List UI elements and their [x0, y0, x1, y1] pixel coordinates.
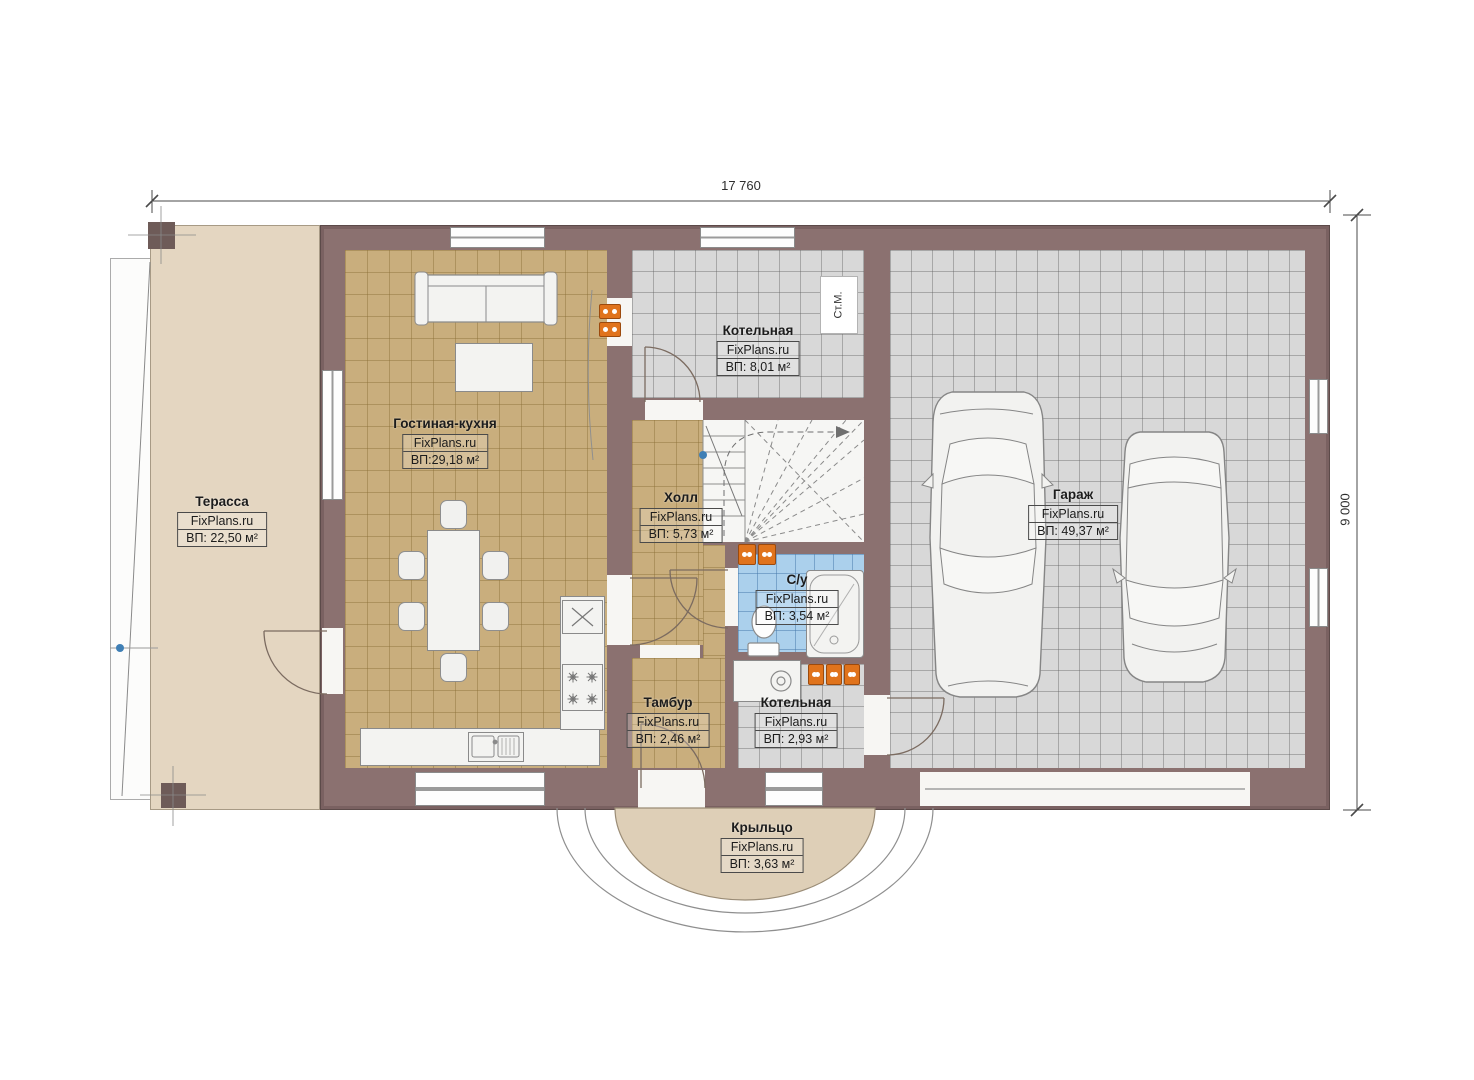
chair [482, 551, 509, 580]
dimension-top [146, 190, 1336, 213]
room-brand: FixPlans.ru [756, 714, 837, 731]
radiator [599, 304, 621, 319]
room-area: ВП: 3,54 м² [757, 608, 838, 624]
room-brand: FixPlans.ru [178, 513, 266, 530]
room-name: Крыльцо [721, 820, 804, 835]
room-brand: FixPlans.ru [722, 839, 803, 856]
chair [440, 653, 467, 682]
room-name: Холл [640, 490, 723, 505]
dimension-height-label: 9 000 [1338, 480, 1353, 540]
terrace-column [148, 222, 175, 249]
window [1309, 379, 1328, 434]
room-name: Тамбур [627, 695, 710, 710]
washing-machine-box: Ст.М. [820, 276, 858, 334]
room-brand: FixPlans.ru [403, 435, 487, 452]
terrace-column [161, 783, 186, 808]
radiator [599, 322, 621, 337]
room-label-boiler-bottom: Котельная FixPlans.ru ВП: 2,93 м² [755, 695, 838, 748]
room-area: ВП:29,18 м² [403, 452, 487, 468]
room-brand: FixPlans.ru [641, 509, 722, 526]
radiator [826, 664, 842, 685]
window [700, 227, 795, 248]
radiator [844, 664, 860, 685]
room-label-porch: Крыльцо FixPlans.ru ВП: 3,63 м² [721, 820, 804, 873]
door-opening-porch [638, 770, 705, 808]
window [450, 227, 545, 248]
room-name: Гараж [1028, 487, 1118, 502]
room-area: ВП: 22,50 м² [178, 530, 266, 546]
kitchen-sink-cabinet [562, 600, 603, 634]
chair [398, 551, 425, 580]
room-area: ВП: 8,01 м² [718, 359, 799, 375]
room-brand: FixPlans.ru [757, 591, 838, 608]
stove [562, 664, 603, 711]
chair [482, 602, 509, 631]
room-label-living: Гостиная-кухня FixPlans.ru ВП:29,18 м² [393, 416, 496, 469]
window [1309, 568, 1328, 627]
room-label-bath: С/у FixPlans.ru ВП: 3,54 м² [756, 572, 839, 625]
floor-plan: Ст.М. [0, 0, 1474, 1080]
room-label-terrace: Терасса FixPlans.ru ВП: 22,50 м² [177, 494, 267, 547]
room-label-hall: Холл FixPlans.ru ВП: 5,73 м² [640, 490, 723, 543]
room-area: ВП: 49,37 м² [1029, 523, 1117, 539]
room-brand: FixPlans.ru [718, 342, 799, 359]
room-area: ВП: 2,46 м² [628, 731, 709, 747]
chair [398, 602, 425, 631]
room-name: С/у [756, 572, 839, 587]
room-brand: FixPlans.ru [628, 714, 709, 731]
dimension-width-label: 17 760 [696, 178, 786, 193]
window [765, 772, 823, 806]
room-brand: FixPlans.ru [1029, 506, 1117, 523]
room-area: ВП: 2,93 м² [756, 731, 837, 747]
door-opening-garage [864, 695, 890, 755]
radiator [808, 664, 824, 685]
room-name: Терасса [177, 494, 267, 509]
radiator [738, 544, 756, 565]
room-name: Котельная [755, 695, 838, 710]
room-name: Котельная [717, 323, 800, 338]
radiator [758, 544, 776, 565]
door-opening-bathroom [725, 568, 738, 626]
window [322, 370, 343, 500]
staircase-area [703, 420, 864, 542]
coffee-table [455, 343, 533, 392]
dining-table [427, 530, 480, 651]
room-label-boiler-top: Котельная FixPlans.ru ВП: 8,01 м² [717, 323, 800, 376]
door-opening-boiler-top [645, 400, 703, 420]
chair [440, 500, 467, 529]
room-area: ВП: 5,73 м² [641, 526, 722, 542]
room-label-garage: Гараж FixPlans.ru ВП: 49,37 м² [1028, 487, 1118, 540]
sink-unit [468, 732, 524, 762]
room-name: Гостиная-кухня [393, 416, 496, 431]
window [415, 772, 545, 806]
room-label-tambour: Тамбур FixPlans.ru ВП: 2,46 м² [627, 695, 710, 748]
hall-floor [703, 545, 725, 658]
garage-gate-opening [920, 772, 1250, 806]
opening-hall-tambour [640, 645, 700, 658]
door-opening-terrace [322, 628, 343, 694]
washing-machine-label: Ст.М. [833, 291, 845, 318]
room-area: ВП: 3,63 м² [722, 856, 803, 872]
door-opening-living-hall [607, 575, 632, 645]
